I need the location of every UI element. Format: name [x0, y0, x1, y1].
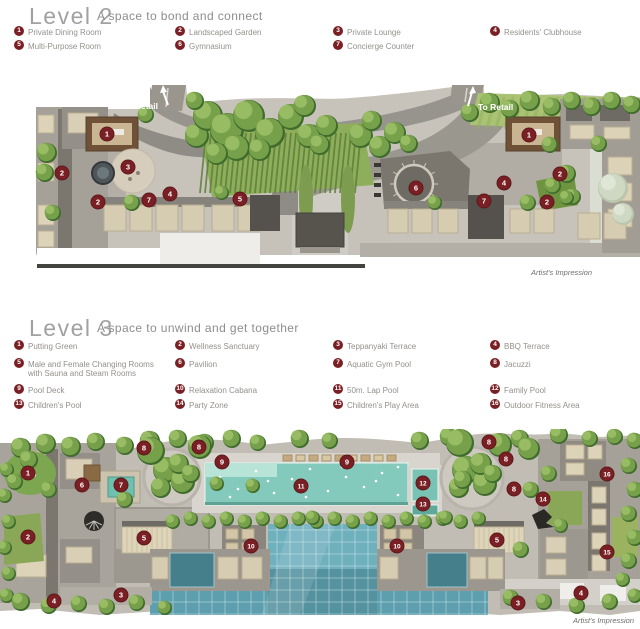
legend-badge: 15 — [333, 399, 343, 409]
svg-text:7: 7 — [147, 196, 151, 205]
plan-marker-8: 8 — [482, 435, 496, 449]
plan-marker-5: 5 — [233, 192, 247, 206]
plan-marker-2: 2 — [540, 195, 554, 209]
plan-marker-2: 2 — [553, 167, 567, 181]
svg-text:10: 10 — [247, 544, 255, 551]
legend-label: Jacuzzi — [504, 358, 531, 369]
plan-marker-7: 7 — [142, 193, 156, 207]
legend-label: 50m. Lap Pool — [347, 384, 399, 395]
svg-text:1: 1 — [105, 130, 109, 139]
plan-marker-3: 3 — [121, 160, 135, 174]
legend-badge: 16 — [490, 399, 500, 409]
legend-badge: 12 — [490, 384, 500, 394]
legend-item: 10Relaxation Cabana — [175, 384, 333, 399]
legend-label: BBQ Terrace — [504, 340, 550, 351]
plan-marker-10: 10 — [244, 539, 258, 553]
svg-text:12: 12 — [419, 481, 427, 488]
svg-text:14: 14 — [539, 497, 547, 504]
legend-badge: 5 — [14, 40, 24, 50]
legend-item: 5Multi-Purpose Room — [14, 40, 175, 54]
legend-badge: 7 — [333, 358, 343, 368]
legend-item: 4Residents' Clubhouse — [490, 26, 582, 40]
plan-marker-5: 5 — [137, 531, 151, 545]
svg-text:7: 7 — [482, 197, 486, 206]
svg-text:2: 2 — [26, 533, 30, 542]
svg-text:8: 8 — [504, 455, 508, 464]
legend-item: 15Children's Play Area — [333, 399, 490, 414]
legend-badge: 1 — [14, 26, 24, 36]
legend-label: Multi-Purpose Room — [28, 40, 101, 51]
legend-label: Family Pool — [504, 384, 546, 395]
artists-impression-caption: Artist's Impression — [530, 268, 592, 277]
legend-item: 4BBQ Terrace — [490, 340, 580, 358]
svg-text:7: 7 — [119, 481, 123, 490]
legend-item: 1Private Dining Room — [14, 26, 175, 40]
svg-text:8: 8 — [512, 485, 516, 494]
level2-plan-illustration: To RetailTo RetailArtist's Impression132… — [0, 85, 640, 280]
legend-item: 7Aquatic Gym Pool — [333, 358, 490, 384]
plan-marker-2: 2 — [21, 530, 35, 544]
legend-label: Aquatic Gym Pool — [347, 358, 411, 369]
svg-text:2: 2 — [60, 169, 64, 178]
legend-item: 6Pavilion — [175, 358, 333, 384]
legend-label: Pavilion — [189, 358, 217, 369]
svg-text:2: 2 — [545, 198, 549, 207]
plan-marker-4: 4 — [163, 187, 177, 201]
svg-text:5: 5 — [142, 534, 146, 543]
legend-badge: 2 — [175, 340, 185, 350]
svg-text:5: 5 — [495, 536, 499, 545]
plan-marker-7: 7 — [114, 478, 128, 492]
plan-marker-15: 15 — [600, 545, 614, 559]
svg-text:10: 10 — [393, 544, 401, 551]
level3-plan: Artist's Impression124367889115109121388… — [0, 429, 640, 629]
legend-badge: 7 — [333, 40, 343, 50]
svg-text:11: 11 — [298, 484, 305, 491]
legend-item: 1150m. Lap Pool — [333, 384, 490, 399]
legend-label: Concierge Counter — [347, 40, 414, 51]
svg-text:6: 6 — [80, 481, 84, 490]
svg-text:To Retail: To Retail — [478, 102, 513, 112]
plan-marker-8: 8 — [499, 452, 513, 466]
svg-text:16: 16 — [603, 472, 611, 479]
legend-badge: 5 — [14, 358, 24, 368]
plan-marker-2: 2 — [91, 195, 105, 209]
legend-badge: 9 — [14, 384, 24, 394]
svg-text:1: 1 — [527, 131, 531, 140]
legend-badge: 1 — [14, 340, 24, 350]
svg-text:8: 8 — [197, 443, 201, 452]
level2-plan: To RetailTo RetailArtist's Impression132… — [0, 85, 640, 280]
plan-marker-8: 8 — [137, 441, 151, 455]
legend-item: 8Jacuzzi — [490, 358, 580, 384]
legend-label: Residents' Clubhouse — [504, 26, 582, 37]
legend-badge: 14 — [175, 399, 185, 409]
svg-text:8: 8 — [142, 444, 146, 453]
legend-label: Putting Green — [28, 340, 77, 351]
plan-marker-1: 1 — [100, 127, 114, 141]
legend-badge: 11 — [333, 384, 343, 394]
plan-marker-4: 4 — [574, 586, 588, 600]
legend-badge: 6 — [175, 40, 185, 50]
legend-badge: 3 — [333, 26, 343, 36]
plan-marker-12: 12 — [416, 476, 430, 490]
plan-marker-8: 8 — [507, 482, 521, 496]
legend-label: Outdoor Fitness Area — [504, 399, 580, 410]
legend-item: 2Wellness Sanctuary — [175, 340, 333, 358]
svg-text:9: 9 — [220, 458, 224, 467]
plan-marker-13: 13 — [416, 497, 430, 511]
legend-badge: 13 — [14, 399, 24, 409]
plan-marker-5: 5 — [490, 533, 504, 547]
plan-marker-1: 1 — [522, 128, 536, 142]
plan-marker-6: 6 — [409, 181, 423, 195]
legend-item: 14Party Zone — [175, 399, 333, 414]
legend-item: 16Outdoor Fitness Area — [490, 399, 580, 414]
svg-text:6: 6 — [414, 184, 418, 193]
plan-marker-14: 14 — [536, 492, 550, 506]
plan-marker-1: 1 — [21, 466, 35, 480]
plan-marker-4: 4 — [47, 594, 61, 608]
legend-badge: 2 — [175, 26, 185, 36]
legend-item: 6Gymnasium — [175, 40, 333, 54]
legend-label: Children's Pool — [28, 399, 82, 410]
plan-marker-16: 16 — [600, 467, 614, 481]
legend-badge: 6 — [175, 358, 185, 368]
svg-text:9: 9 — [345, 458, 349, 467]
legend-item: 2Landscaped Garden — [175, 26, 333, 40]
level2-legend: 1Private Dining Room2Landscaped Garden3P… — [14, 26, 582, 54]
legend-badge: 4 — [490, 340, 500, 350]
svg-text:5: 5 — [238, 195, 242, 204]
plan-marker-2: 2 — [55, 166, 69, 180]
plan-marker-7: 7 — [477, 194, 491, 208]
plan-marker-3: 3 — [114, 588, 128, 602]
svg-text:3: 3 — [119, 591, 123, 600]
legend-item: 9Pool Deck — [14, 384, 175, 399]
legend-label: Pool Deck — [28, 384, 64, 395]
legend-label: Private Lounge — [347, 26, 401, 37]
level3-plan-illustration: Artist's Impression124367889115109121388… — [0, 429, 640, 629]
legend-badge: 4 — [490, 26, 500, 36]
legend-label: Landscaped Garden — [189, 26, 262, 37]
legend-label: Teppanyaki Terrace — [347, 340, 416, 351]
svg-text:3: 3 — [516, 599, 520, 608]
level3-subtitle: A space to unwind and get together — [97, 321, 299, 335]
legend-label: Children's Play Area — [347, 399, 419, 410]
legend-label: Relaxation Cabana — [189, 384, 257, 395]
floorplan-page: Level 2 A space to bond and connect 1Pri… — [0, 0, 640, 629]
legend-item: 5Male and Female Changing Rooms with Sau… — [14, 358, 175, 384]
plan-marker-11: 11 — [294, 479, 308, 493]
legend-label: Private Dining Room — [28, 26, 101, 37]
svg-text:2: 2 — [558, 170, 562, 179]
plan-marker-3: 3 — [511, 596, 525, 610]
svg-text:2: 2 — [96, 198, 100, 207]
plan-marker-9: 9 — [215, 455, 229, 469]
legend-label: Male and Female Changing Rooms with Saun… — [28, 358, 154, 379]
plan-marker-9: 9 — [340, 455, 354, 469]
legend-badge: 3 — [333, 340, 343, 350]
svg-text:13: 13 — [419, 502, 427, 509]
legend-item: 13Children's Pool — [14, 399, 175, 414]
legend-item: 12Family Pool — [490, 384, 580, 399]
plan-marker-10: 10 — [390, 539, 404, 553]
svg-text:8: 8 — [487, 438, 491, 447]
level2-subtitle: A space to bond and connect — [97, 9, 263, 23]
plan-marker-8: 8 — [192, 440, 206, 454]
legend-label: Gymnasium — [189, 40, 232, 51]
legend-label: Party Zone — [189, 399, 228, 410]
svg-text:To Retail: To Retail — [123, 101, 158, 111]
legend-item: 3Private Lounge — [333, 26, 490, 40]
level3-legend: 1Putting Green2Wellness Sanctuary3Teppan… — [14, 340, 580, 414]
legend-item: 7Concierge Counter — [333, 40, 490, 54]
legend-item: 1Putting Green — [14, 340, 175, 358]
svg-text:1: 1 — [26, 469, 30, 478]
legend-item: 3Teppanyaki Terrace — [333, 340, 490, 358]
legend-badge: 8 — [490, 358, 500, 368]
plan-marker-6: 6 — [75, 478, 89, 492]
legend-label: Wellness Sanctuary — [189, 340, 260, 351]
plan-marker-4: 4 — [497, 176, 511, 190]
artists-impression-caption: Artist's Impression — [572, 616, 634, 625]
legend-badge: 10 — [175, 384, 185, 394]
svg-text:15: 15 — [603, 550, 611, 557]
svg-text:3: 3 — [126, 163, 130, 172]
